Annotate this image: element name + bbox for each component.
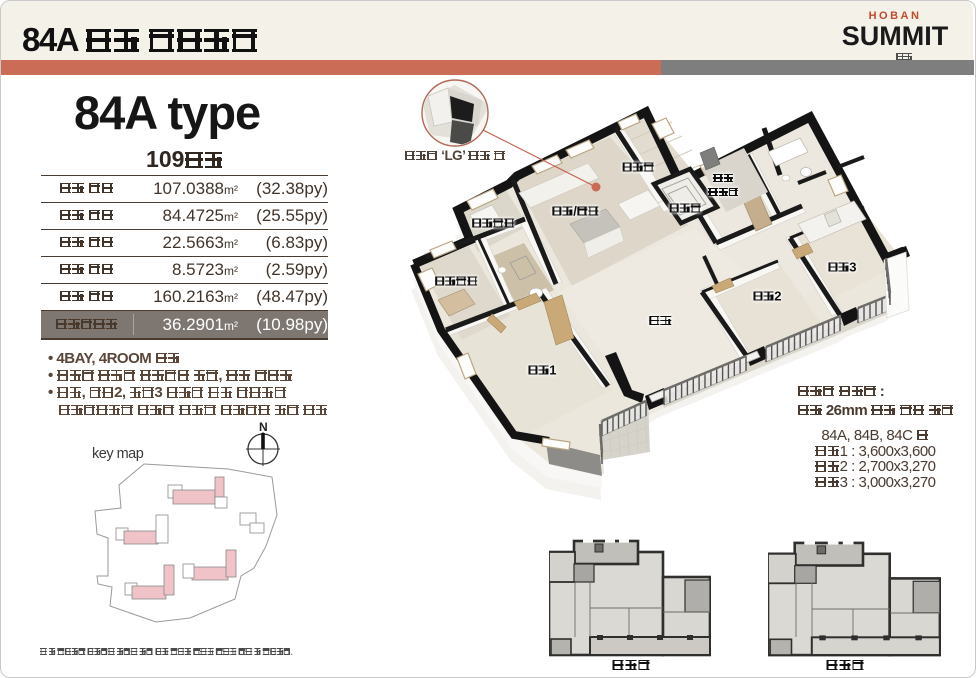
- svg-text:N: N: [259, 420, 268, 434]
